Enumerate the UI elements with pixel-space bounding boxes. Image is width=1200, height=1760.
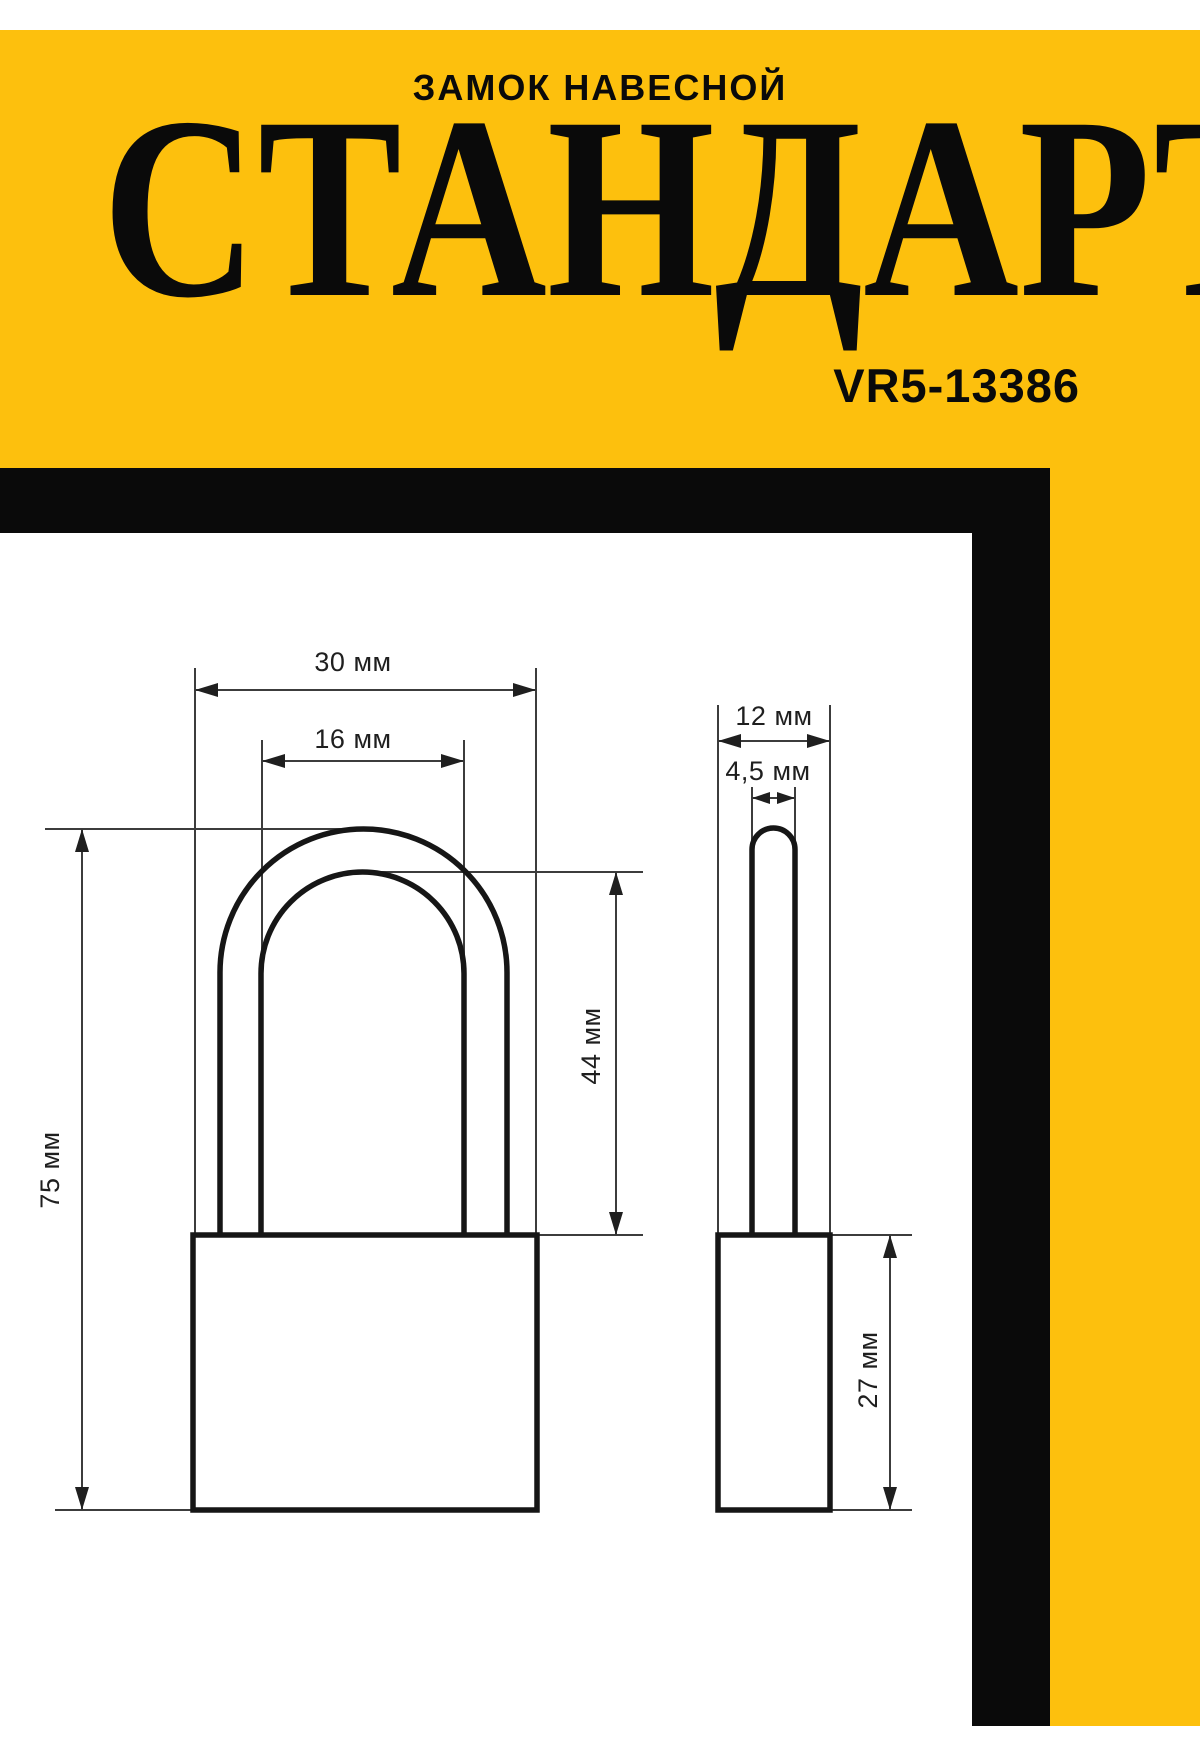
drawing-sheet: 30 мм 16 мм 75 мм <box>0 533 972 1726</box>
dim-shackle-height-44mm: 44 мм <box>365 872 643 1235</box>
product-sheet: 30 мм 16 мм 75 мм <box>0 0 1200 1760</box>
dim-shackle-diameter-4-5mm: 4,5 мм <box>725 756 810 850</box>
dim-label-4-5mm: 4,5 мм <box>725 756 810 786</box>
dim-label-12mm: 12 мм <box>735 701 812 731</box>
padlock-technical-drawing: 30 мм 16 мм 75 мм <box>0 533 972 1726</box>
front-body <box>193 1235 537 1510</box>
padlock-side-view <box>718 828 830 1510</box>
dim-label-16mm: 16 мм <box>314 724 391 754</box>
side-body <box>718 1235 830 1510</box>
dim-shackle-inner-width-16mm: 16 мм <box>262 724 464 1235</box>
model-number: VR5-13386 <box>833 362 1080 409</box>
dim-label-30mm: 30 мм <box>314 647 391 677</box>
dim-body-height-27mm: 27 мм <box>830 1235 912 1510</box>
padlock-front-view <box>193 829 537 1510</box>
side-shackle <box>752 828 795 1235</box>
dim-label-27mm: 27 мм <box>853 1331 883 1408</box>
dim-label-44mm: 44 мм <box>576 1007 606 1084</box>
dim-label-75mm: 75 мм <box>35 1131 65 1208</box>
product-title: СТАНДАРТ <box>102 78 1098 338</box>
front-shackle-inner <box>261 872 464 1235</box>
